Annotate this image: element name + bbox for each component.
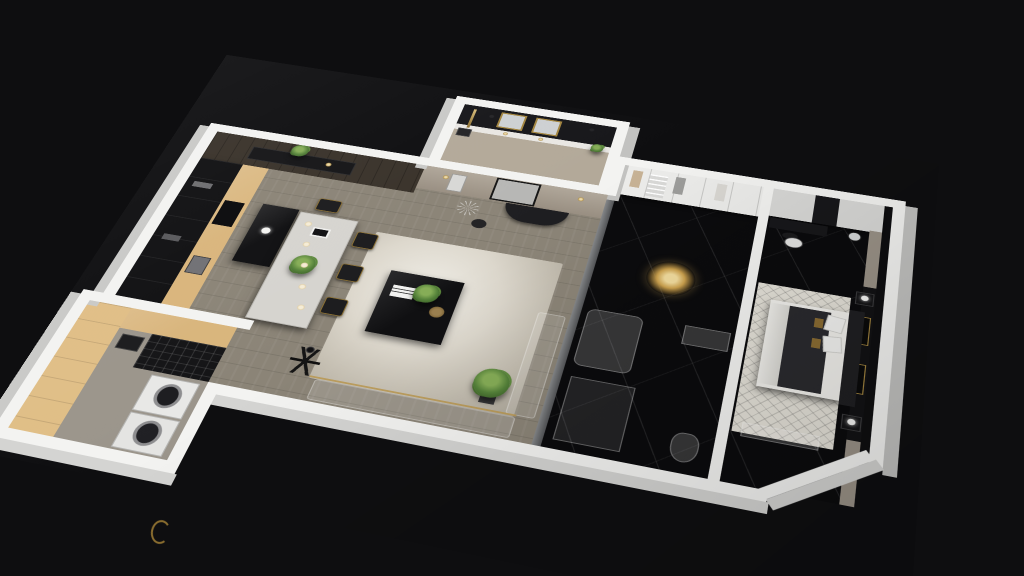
apartment-floorplan: [17, 54, 910, 576]
bed-pillow-2: [823, 336, 842, 354]
gold-c-outline: [149, 518, 173, 545]
bed-gold-cushion-2: [811, 338, 821, 349]
bed-gold-cushion-1: [814, 318, 824, 329]
render-viewport: [0, 0, 1024, 576]
